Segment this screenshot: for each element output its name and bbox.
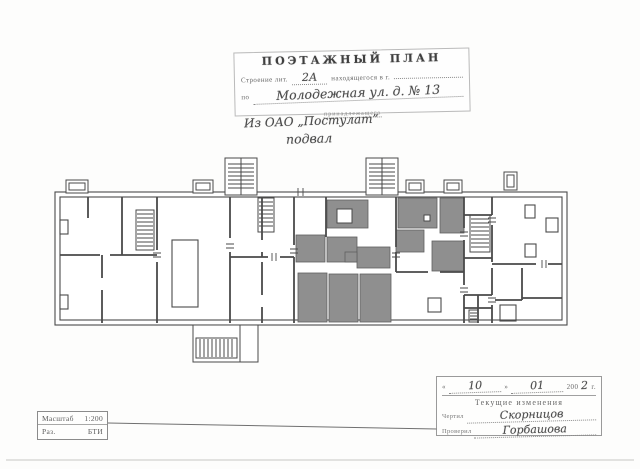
staircase-tower-left xyxy=(225,158,257,195)
scale-stamp: Масштаб 1:200 Раз. БТИ xyxy=(37,411,108,440)
window-wells xyxy=(66,172,517,193)
floor-handwritten: подвал xyxy=(286,130,333,147)
year-suffix: г. xyxy=(591,383,596,391)
year-digit: 2 xyxy=(581,379,588,392)
revision-stamp: « 10 » 01 200 2 г. Текущие изменения Чер… xyxy=(436,376,602,436)
building-label: Строение лит. xyxy=(241,75,288,84)
checked-label: Проверил xyxy=(442,428,471,435)
date-month: 01 xyxy=(511,378,564,394)
document-title: ПОЭТАЖНЫЙ ПЛАН xyxy=(240,51,462,69)
scale-value: 1:200 xyxy=(84,414,103,423)
staircase-tower-right xyxy=(366,158,398,195)
street-label: по xyxy=(241,93,249,101)
checked-value: Горбашова xyxy=(474,421,596,438)
revision-title: Текущие изменения xyxy=(442,398,596,407)
scale-label: Масштаб xyxy=(42,414,74,423)
quote-open: « xyxy=(442,383,446,391)
building-letter-value: 2А xyxy=(292,71,328,86)
basement-stair-exit xyxy=(193,325,258,362)
revision-date: « 10 » 01 200 2 г. xyxy=(442,379,596,396)
drafted-label: Чертил xyxy=(442,413,464,420)
located-label: находящегося в г. xyxy=(331,73,390,82)
org-label: Раз. xyxy=(42,427,56,436)
date-day: 10 xyxy=(449,378,502,394)
quote-close: » xyxy=(504,383,508,391)
year-printed: 200 xyxy=(567,383,579,391)
blank-line xyxy=(394,77,463,79)
scan-edge-shadow xyxy=(6,459,634,461)
stamp-connector-line xyxy=(108,423,437,429)
header-stamp: ПОЭТАЖНЫЙ ПЛАН Строение лит. 2А находяще… xyxy=(233,48,470,117)
org-value: БТИ xyxy=(88,427,103,436)
